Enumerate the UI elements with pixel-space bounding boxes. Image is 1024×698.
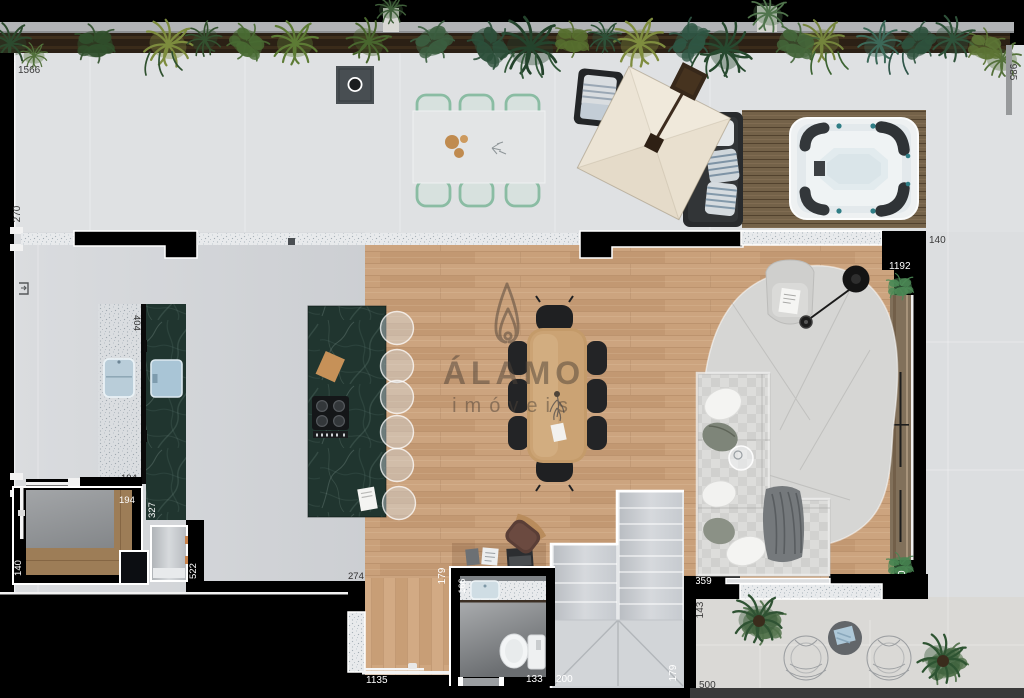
svg-text:143: 143 <box>695 601 706 618</box>
svg-text:1135: 1135 <box>366 675 388 686</box>
svg-text:522: 522 <box>188 563 199 579</box>
svg-text:359: 359 <box>695 576 712 587</box>
svg-text:179: 179 <box>668 664 679 681</box>
svg-text:179: 179 <box>437 567 448 584</box>
svg-text:985: 985 <box>1007 64 1018 81</box>
svg-text:166: 166 <box>457 578 467 593</box>
svg-text:140: 140 <box>13 560 24 576</box>
svg-text:1192: 1192 <box>889 261 911 272</box>
svg-text:327: 327 <box>147 502 158 518</box>
svg-text:133: 133 <box>526 674 543 685</box>
svg-text:1566: 1566 <box>18 65 41 76</box>
svg-text:ÁLAMO: ÁLAMO <box>443 355 585 391</box>
svg-text:194: 194 <box>119 495 135 506</box>
svg-text:270: 270 <box>12 205 23 222</box>
svg-text:274: 274 <box>348 571 364 582</box>
svg-text:imóveis: imóveis <box>452 395 576 417</box>
svg-text:200: 200 <box>556 674 573 685</box>
svg-text:404: 404 <box>131 315 142 331</box>
svg-text:140: 140 <box>929 235 946 246</box>
